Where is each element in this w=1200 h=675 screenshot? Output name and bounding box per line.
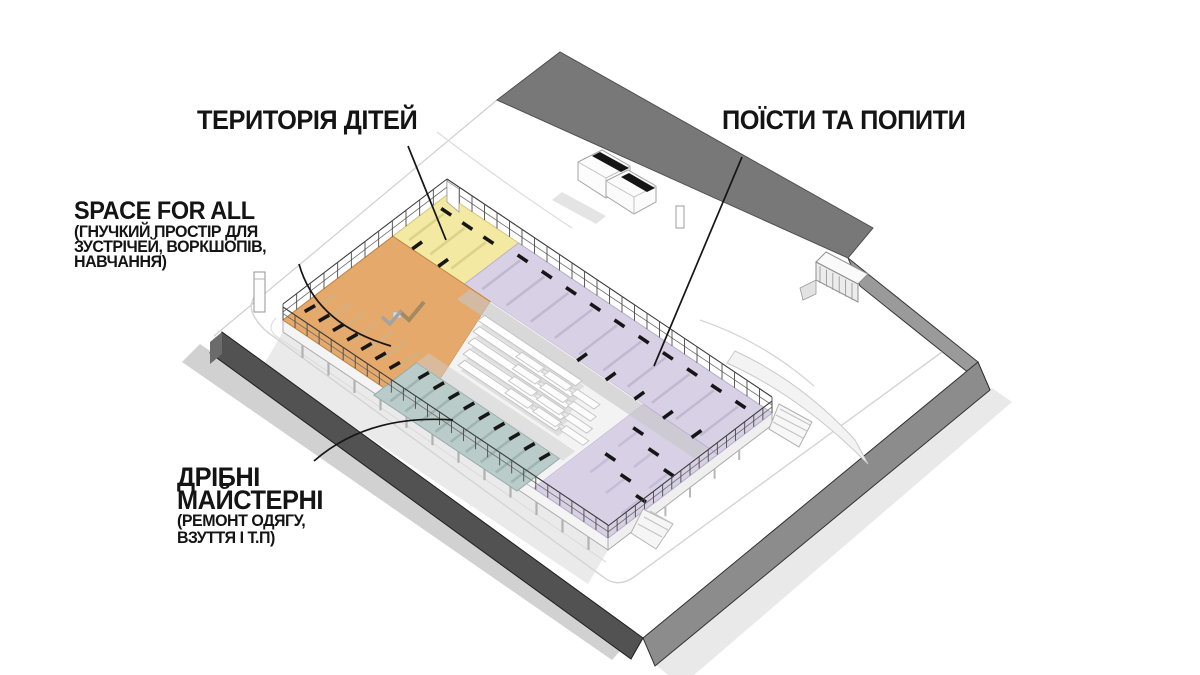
label-space-for-all-sub3: НАВЧАННЯ) (74, 254, 266, 269)
site-axonometric-diagram (0, 0, 1200, 675)
label-space-for-all: SPACE FOR ALL (ГНУЧКИЙ ПРОСТІР ДЛЯ ЗУСТР… (74, 199, 266, 269)
chimney (254, 272, 265, 312)
label-kids-area: ТЕРИТОРІЯ ДІТЕЙ (197, 107, 417, 134)
label-eat-and-drink-text: ПОЇСТИ ТА ПОПИТИ (722, 105, 965, 135)
label-small-workshops-sub1: (РЕМОНТ ОДЯГУ, (177, 512, 323, 529)
label-space-for-all-title: SPACE FOR ALL (74, 199, 266, 224)
label-kids-area-text: ТЕРИТОРІЯ ДІТЕЙ (197, 105, 417, 135)
diagram-geometry (182, 52, 1012, 675)
retaining-wall-top (497, 52, 873, 258)
label-small-workshops: ДРІБНІ МАЙСТЕРНІ (РЕМОНТ ОДЯГУ, ВЗУТТЯ І… (177, 466, 323, 546)
site-diagram-page: ТЕРИТОРІЯ ДІТЕЙ ПОЇСТИ ТА ПОПИТИ SPACE F… (0, 0, 1200, 675)
label-small-workshops-title2: МАЙСТЕРНІ (177, 489, 323, 512)
label-small-workshops-sub2: ВЗУТТЯ І Т.П) (177, 529, 323, 546)
label-eat-and-drink: ПОЇСТИ ТА ПОПИТИ (722, 107, 965, 134)
stair-block-upper-right (800, 252, 868, 302)
